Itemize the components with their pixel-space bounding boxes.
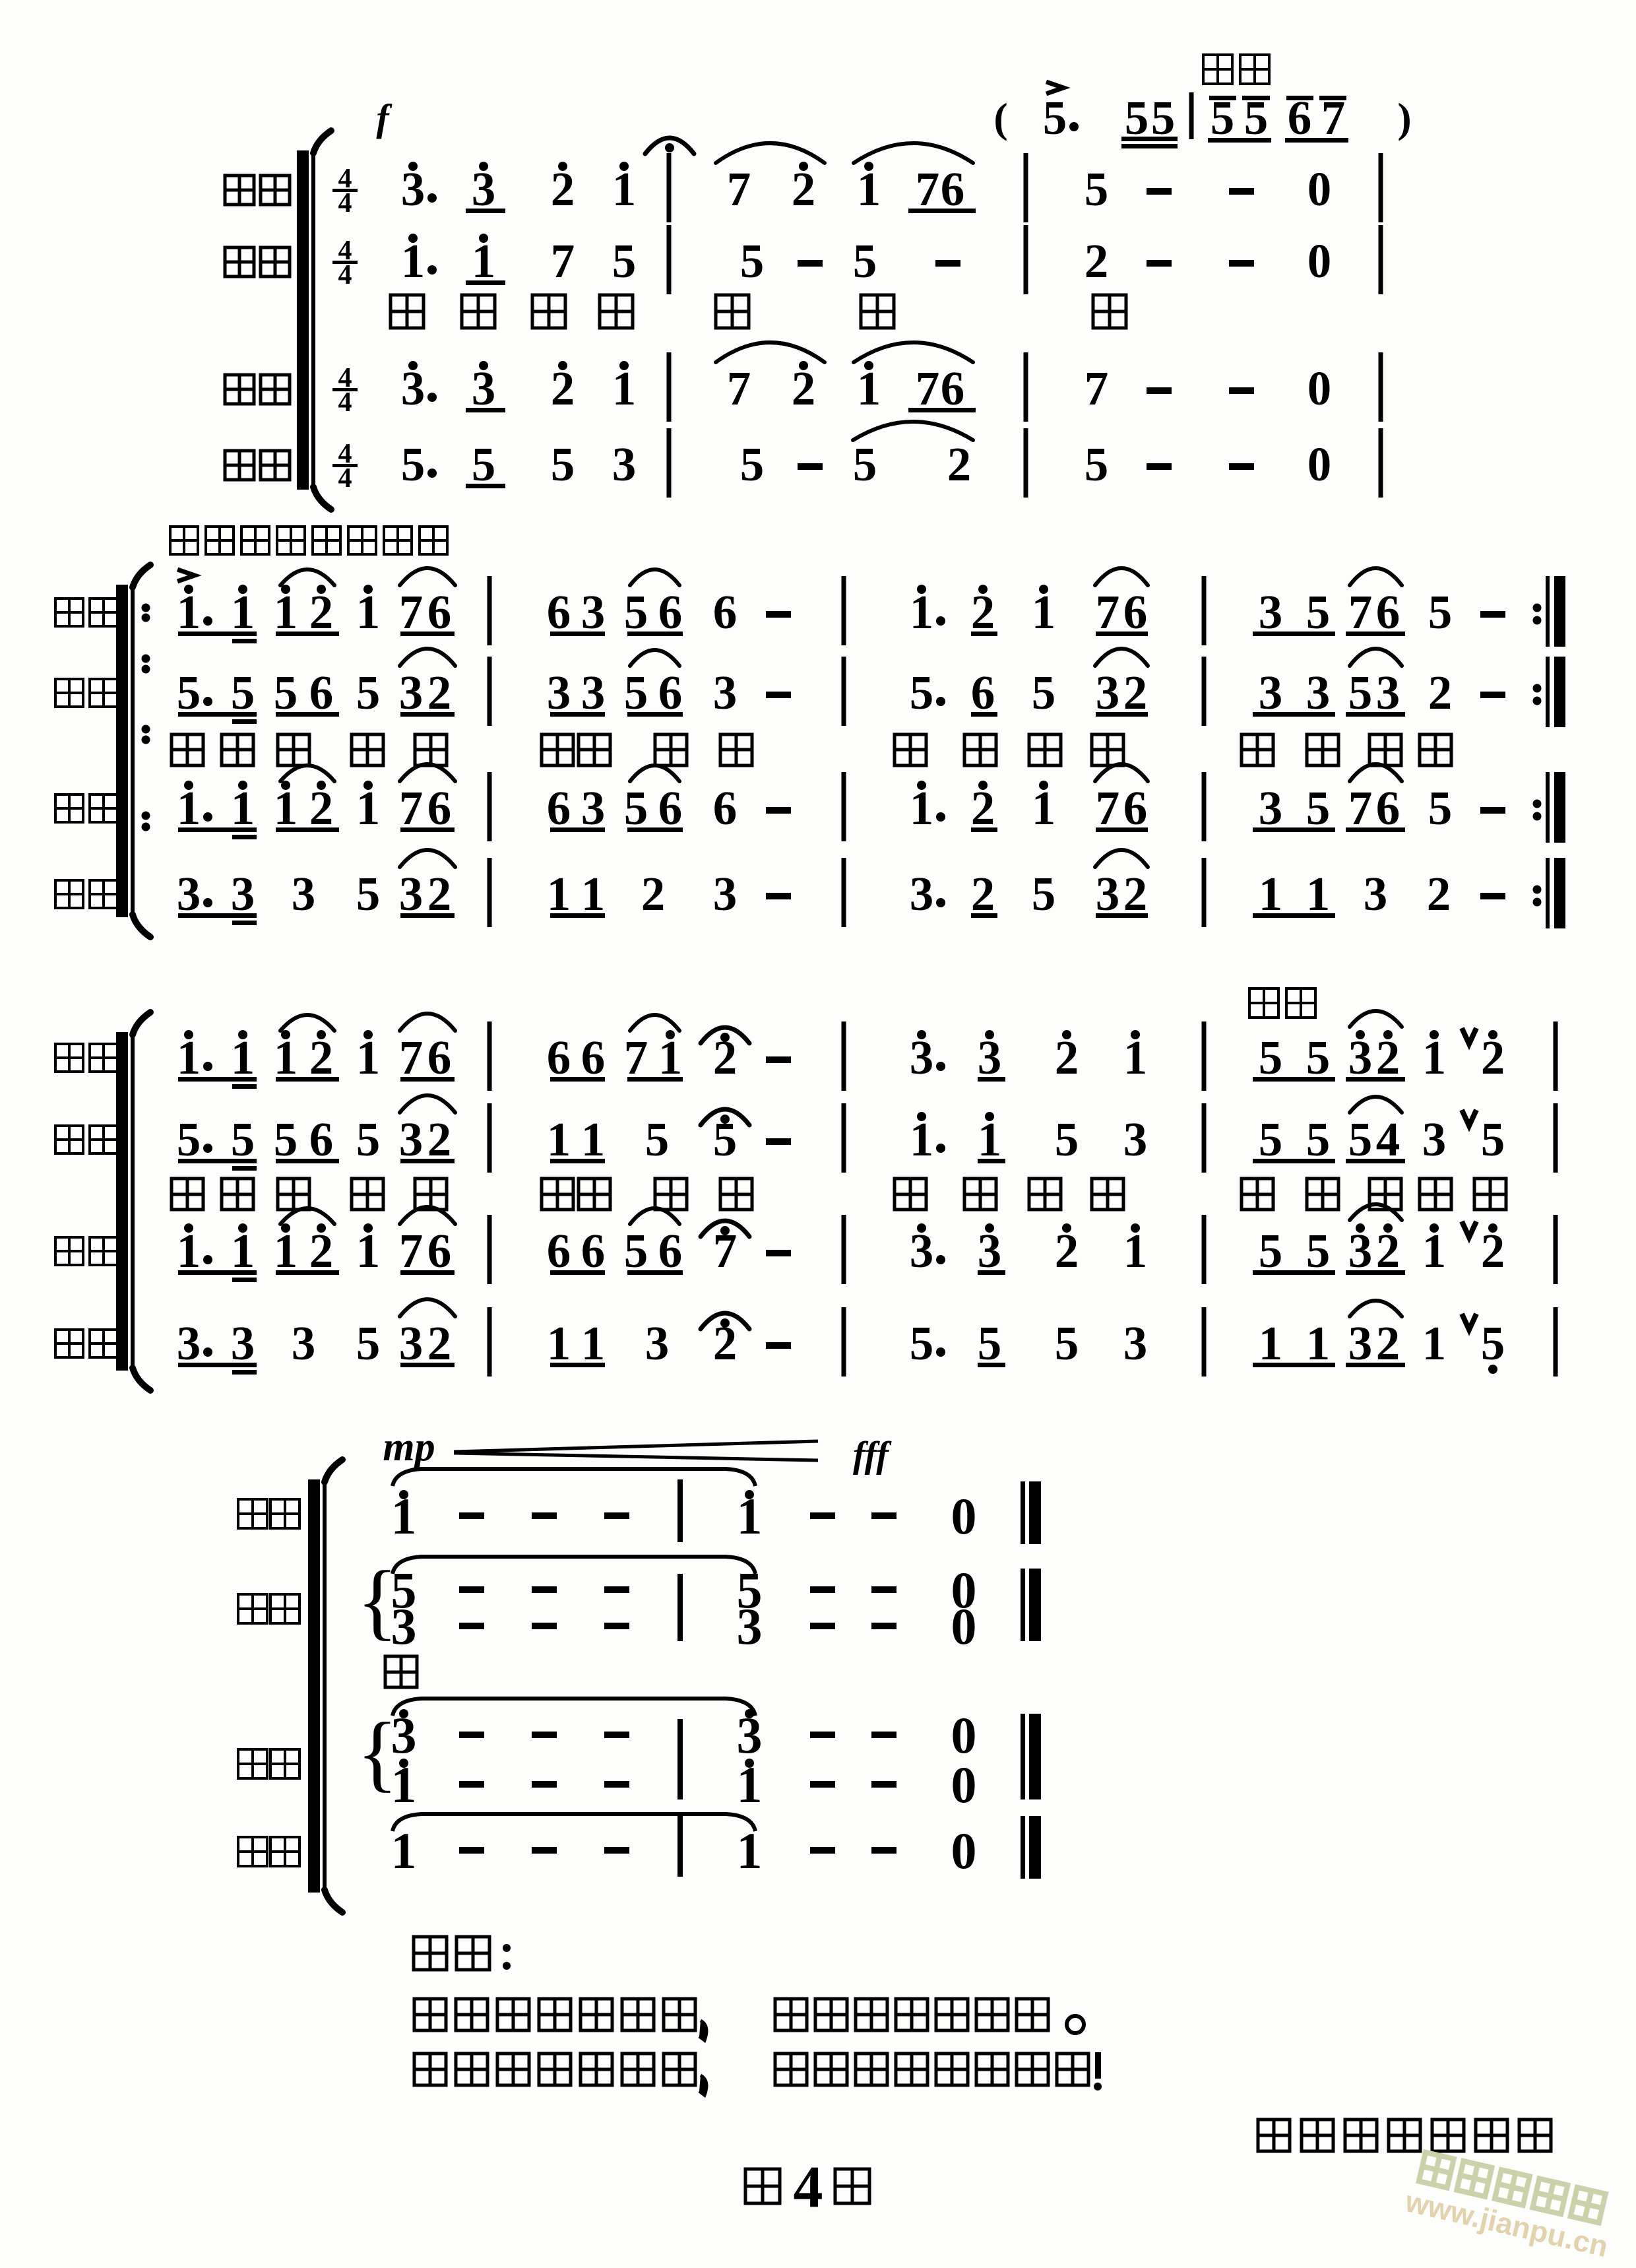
svg-text:3: 3 bbox=[1348, 1316, 1373, 1370]
svg-text:7: 7 bbox=[1085, 362, 1109, 415]
svg-text:5: 5 bbox=[1259, 1224, 1283, 1278]
svg-text:3: 3 bbox=[581, 781, 606, 835]
svg-text:1: 1 bbox=[547, 1316, 571, 1370]
svg-text:1: 1 bbox=[1259, 867, 1283, 921]
svg-text:6: 6 bbox=[1376, 585, 1400, 639]
svg-text:5: 5 bbox=[624, 666, 648, 719]
svg-text:6: 6 bbox=[547, 781, 571, 835]
svg-text:5: 5 bbox=[612, 234, 637, 288]
svg-text:fff: fff bbox=[853, 1435, 892, 1475]
svg-text:5: 5 bbox=[1032, 867, 1056, 921]
svg-text:0: 0 bbox=[951, 1487, 977, 1545]
svg-text:7: 7 bbox=[1348, 585, 1373, 639]
svg-text:2: 2 bbox=[427, 1316, 452, 1370]
svg-text:3: 3 bbox=[1123, 1113, 1148, 1166]
svg-text:3: 3 bbox=[292, 1316, 316, 1370]
svg-text:5: 5 bbox=[274, 666, 298, 719]
svg-text:5: 5 bbox=[624, 585, 648, 639]
svg-text:5: 5 bbox=[1348, 666, 1373, 719]
svg-text:7: 7 bbox=[399, 781, 424, 835]
svg-text:6: 6 bbox=[713, 585, 738, 639]
svg-text:0: 0 bbox=[1307, 234, 1332, 288]
svg-text:2: 2 bbox=[1376, 1316, 1400, 1370]
svg-text:5: 5 bbox=[853, 437, 877, 491]
svg-text:3: 3 bbox=[1259, 585, 1283, 639]
svg-text:5: 5 bbox=[1032, 666, 1056, 719]
svg-text:5: 5 bbox=[853, 234, 877, 288]
svg-text:5: 5 bbox=[978, 1316, 1002, 1370]
svg-text:3: 3 bbox=[713, 666, 738, 719]
svg-text:5: 5 bbox=[401, 437, 425, 491]
svg-text:5: 5 bbox=[645, 1113, 670, 1166]
svg-text:3: 3 bbox=[547, 666, 571, 719]
svg-text:3: 3 bbox=[1376, 666, 1400, 719]
svg-text:6: 6 bbox=[547, 1224, 571, 1278]
svg-text:5: 5 bbox=[1085, 437, 1109, 491]
svg-text:5: 5 bbox=[1085, 162, 1109, 216]
svg-text:(: ( bbox=[993, 94, 1007, 141]
svg-text:1: 1 bbox=[1259, 1316, 1283, 1370]
svg-text:6: 6 bbox=[309, 666, 334, 719]
svg-text:5: 5 bbox=[1348, 1113, 1373, 1166]
svg-text:7: 7 bbox=[727, 362, 751, 415]
svg-text:6: 6 bbox=[971, 666, 995, 719]
svg-text:3: 3 bbox=[399, 666, 424, 719]
svg-text:5: 5 bbox=[624, 1224, 648, 1278]
svg-text:3: 3 bbox=[1364, 867, 1388, 921]
svg-text:3: 3 bbox=[231, 1316, 255, 1370]
svg-text:6: 6 bbox=[581, 1031, 606, 1084]
svg-text:3: 3 bbox=[1096, 867, 1120, 921]
svg-text:2: 2 bbox=[427, 867, 452, 921]
svg-text:6: 6 bbox=[427, 781, 452, 835]
svg-text:7: 7 bbox=[399, 1031, 424, 1084]
svg-text:6: 6 bbox=[547, 1031, 571, 1084]
svg-text:1: 1 bbox=[1306, 1316, 1331, 1370]
svg-text:5: 5 bbox=[1259, 1113, 1283, 1166]
svg-text:0: 0 bbox=[1307, 362, 1332, 415]
svg-text:5: 5 bbox=[1043, 91, 1067, 145]
svg-text:2: 2 bbox=[1428, 666, 1453, 719]
svg-text:6: 6 bbox=[1123, 585, 1148, 639]
svg-text:6: 6 bbox=[581, 1224, 606, 1278]
svg-text:4: 4 bbox=[338, 387, 352, 418]
svg-text:6: 6 bbox=[941, 362, 965, 415]
svg-text:5: 5 bbox=[1055, 1316, 1079, 1370]
svg-text:5: 5 bbox=[231, 666, 255, 719]
svg-text:5: 5 bbox=[1481, 1316, 1505, 1370]
svg-text:6: 6 bbox=[658, 781, 683, 835]
svg-text:2: 2 bbox=[1123, 666, 1148, 719]
svg-text:7: 7 bbox=[727, 162, 751, 216]
svg-text:5: 5 bbox=[177, 666, 201, 719]
svg-text:5: 5 bbox=[274, 1113, 298, 1166]
svg-text:6: 6 bbox=[941, 162, 965, 216]
svg-text:1: 1 bbox=[737, 1822, 763, 1879]
svg-text:1: 1 bbox=[1422, 1316, 1447, 1370]
svg-text:): ) bbox=[1397, 94, 1411, 141]
svg-text:6: 6 bbox=[658, 1224, 683, 1278]
svg-text:7: 7 bbox=[399, 1224, 424, 1278]
svg-text:3: 3 bbox=[177, 1316, 201, 1370]
svg-text:6: 6 bbox=[427, 1031, 452, 1084]
svg-text:5: 5 bbox=[231, 1113, 255, 1166]
svg-text:3: 3 bbox=[1259, 666, 1283, 719]
svg-text:5: 5 bbox=[551, 437, 575, 491]
svg-text:3: 3 bbox=[910, 867, 934, 921]
svg-text:2: 2 bbox=[1123, 867, 1148, 921]
svg-text:3: 3 bbox=[581, 585, 606, 639]
svg-text:3: 3 bbox=[391, 1598, 417, 1655]
svg-text:6: 6 bbox=[547, 585, 571, 639]
svg-text:3: 3 bbox=[231, 867, 255, 921]
svg-text:0: 0 bbox=[951, 1706, 977, 1764]
svg-text:5: 5 bbox=[1481, 1113, 1505, 1166]
svg-text:4: 4 bbox=[338, 463, 352, 494]
svg-text:5: 5 bbox=[624, 781, 648, 835]
svg-text:5: 5 bbox=[356, 666, 381, 719]
svg-text:5: 5 bbox=[1306, 1224, 1331, 1278]
svg-text:6: 6 bbox=[309, 1113, 334, 1166]
svg-text:6: 6 bbox=[1123, 781, 1148, 835]
svg-text:5: 5 bbox=[356, 1316, 381, 1370]
svg-text:5: 5 bbox=[1306, 585, 1331, 639]
svg-text:5: 5 bbox=[740, 234, 765, 288]
svg-text:0: 0 bbox=[951, 1756, 977, 1813]
svg-text:3: 3 bbox=[177, 867, 201, 921]
svg-text:1: 1 bbox=[547, 1113, 571, 1166]
svg-text:3: 3 bbox=[612, 437, 637, 491]
svg-text:0: 0 bbox=[1307, 437, 1332, 491]
svg-text:2: 2 bbox=[971, 867, 995, 921]
svg-text:3: 3 bbox=[645, 1316, 670, 1370]
svg-text:5: 5 bbox=[356, 1113, 381, 1166]
svg-text:3: 3 bbox=[581, 666, 606, 719]
svg-text:6: 6 bbox=[427, 1224, 452, 1278]
svg-text:7: 7 bbox=[916, 162, 940, 216]
svg-text:7: 7 bbox=[1096, 781, 1120, 835]
svg-text:7: 7 bbox=[1096, 585, 1120, 639]
svg-text:6: 6 bbox=[658, 585, 683, 639]
svg-text:6: 6 bbox=[658, 666, 683, 719]
svg-text:4: 4 bbox=[338, 260, 352, 290]
svg-text:5: 5 bbox=[1125, 91, 1149, 145]
svg-text:5: 5 bbox=[1306, 781, 1331, 835]
svg-text:6: 6 bbox=[713, 781, 738, 835]
svg-text:2: 2 bbox=[641, 867, 666, 921]
svg-text:3: 3 bbox=[737, 1598, 763, 1655]
svg-text:3: 3 bbox=[713, 867, 738, 921]
svg-text:7: 7 bbox=[624, 1031, 648, 1084]
svg-text:2: 2 bbox=[1085, 234, 1109, 288]
svg-text:2: 2 bbox=[947, 437, 972, 491]
svg-text:4: 4 bbox=[338, 188, 352, 218]
svg-text:5: 5 bbox=[740, 437, 765, 491]
svg-text:1: 1 bbox=[581, 1113, 606, 1166]
svg-text:3: 3 bbox=[1306, 666, 1331, 719]
svg-text:0: 0 bbox=[951, 1598, 977, 1655]
svg-text:0: 0 bbox=[1307, 162, 1332, 216]
svg-text:mp: mp bbox=[383, 1425, 435, 1470]
svg-text:3: 3 bbox=[1123, 1316, 1148, 1370]
svg-text:3: 3 bbox=[1422, 1113, 1447, 1166]
svg-text:3: 3 bbox=[399, 1113, 424, 1166]
svg-text:5: 5 bbox=[1151, 91, 1176, 145]
svg-text:5: 5 bbox=[177, 1113, 201, 1166]
svg-text:2: 2 bbox=[427, 666, 452, 719]
svg-text:1: 1 bbox=[581, 867, 606, 921]
svg-text:6: 6 bbox=[1376, 781, 1400, 835]
svg-text:7: 7 bbox=[399, 585, 424, 639]
svg-text:5: 5 bbox=[1306, 1031, 1331, 1084]
svg-text:5: 5 bbox=[1055, 1113, 1079, 1166]
svg-text:0: 0 bbox=[951, 1822, 977, 1879]
svg-text:7: 7 bbox=[551, 234, 575, 288]
svg-text:5: 5 bbox=[910, 1316, 934, 1370]
svg-text:5: 5 bbox=[356, 867, 381, 921]
svg-text:4: 4 bbox=[794, 2155, 823, 2220]
svg-text:2: 2 bbox=[1427, 867, 1451, 921]
svg-text:5: 5 bbox=[1428, 781, 1453, 835]
svg-text:7: 7 bbox=[1348, 781, 1373, 835]
svg-text:3: 3 bbox=[1096, 666, 1120, 719]
svg-text:5: 5 bbox=[1306, 1113, 1331, 1166]
svg-text:1: 1 bbox=[581, 1316, 606, 1370]
svg-text:3: 3 bbox=[1259, 781, 1283, 835]
svg-text:1: 1 bbox=[1306, 867, 1331, 921]
svg-text:3: 3 bbox=[399, 867, 424, 921]
svg-text:1: 1 bbox=[391, 1822, 417, 1879]
svg-text:7: 7 bbox=[916, 362, 940, 415]
svg-text:2: 2 bbox=[427, 1113, 452, 1166]
svg-text:4: 4 bbox=[1376, 1113, 1400, 1166]
svg-text:5: 5 bbox=[1428, 585, 1453, 639]
svg-text:1: 1 bbox=[547, 867, 571, 921]
svg-text:5: 5 bbox=[910, 666, 934, 719]
svg-text:3: 3 bbox=[399, 1316, 424, 1370]
svg-text:6: 6 bbox=[427, 585, 452, 639]
svg-text:5: 5 bbox=[472, 437, 496, 491]
svg-text:3: 3 bbox=[292, 867, 316, 921]
svg-text:5: 5 bbox=[1259, 1031, 1283, 1084]
